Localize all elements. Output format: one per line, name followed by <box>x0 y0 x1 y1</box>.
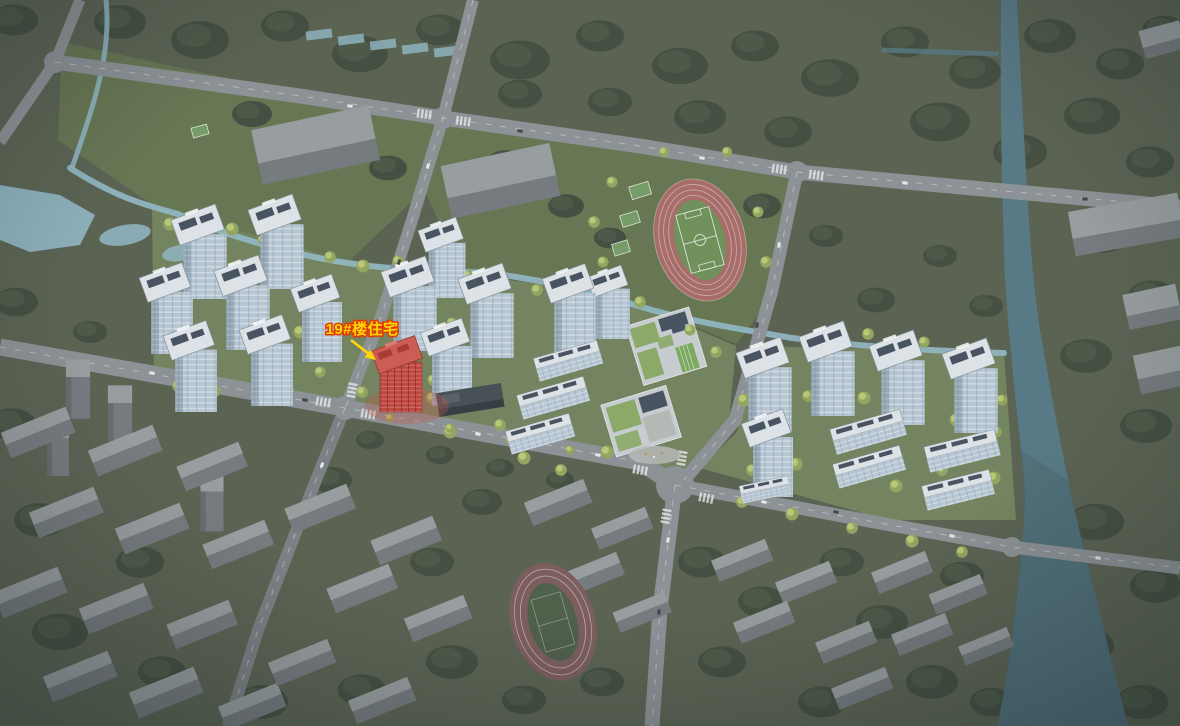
rendering-canvas: 19#楼住宅 <box>0 0 1180 726</box>
aerial-masterplan-rendering: 19#楼住宅 <box>0 0 1180 726</box>
building-19-label: 19#楼住宅 <box>325 320 398 338</box>
vignette <box>0 0 1180 726</box>
